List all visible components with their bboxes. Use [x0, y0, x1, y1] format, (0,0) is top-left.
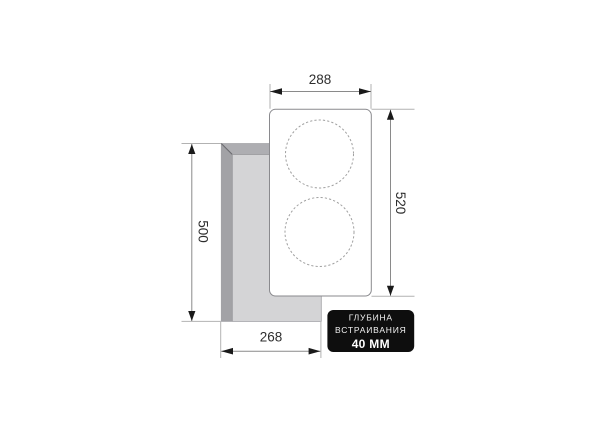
svg-text:500: 500	[196, 220, 211, 243]
svg-text:ГЛУБИНА: ГЛУБИНА	[349, 312, 393, 322]
svg-text:288: 288	[309, 72, 332, 87]
svg-text:520: 520	[393, 192, 408, 215]
svg-text:268: 268	[260, 330, 283, 345]
svg-text:ВСТРАИВАНИЯ: ВСТРАИВАНИЯ	[335, 325, 407, 335]
svg-text:40 ММ: 40 ММ	[352, 337, 390, 351]
